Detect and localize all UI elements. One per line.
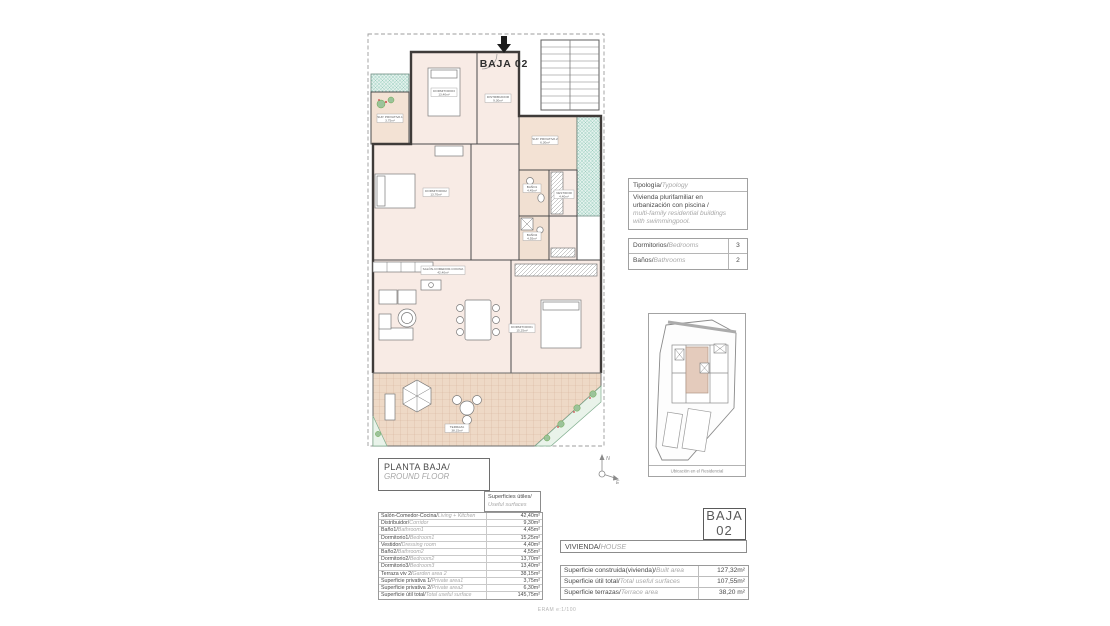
compass-east-label: E: [616, 480, 620, 484]
room-tag: TERRAZA38,15m²: [445, 424, 469, 433]
room-bano1: [519, 170, 549, 216]
room-tag: DORMITORIO115,25m²: [509, 324, 535, 333]
house-summary-table: Superficie construida(vivienda)/Built ar…: [560, 565, 749, 600]
title-block: PLANTA BAJA/ GROUND FLOOR: [378, 458, 490, 491]
table-row: Salón-Comedor-Cocina/Living + Kitchen42,…: [379, 513, 542, 520]
table-row: Dormitorio3/Bedroom313,40m²: [379, 563, 542, 570]
svg-text:42,40m²: 42,40m²: [437, 271, 448, 275]
unit-label: BAJA 02: [480, 58, 528, 70]
room-tag: BAÑO14,45m²: [523, 184, 541, 193]
green-mosaic-strip-left: [371, 74, 409, 92]
table-row: Baño2/Bathroom24,55m²: [379, 549, 542, 556]
bedrooms-count: 3: [728, 239, 747, 253]
floor-title-en: GROUND FLOOR: [384, 472, 489, 481]
svg-text:38,15m²: 38,15m²: [451, 429, 462, 433]
stairs-icon: [541, 40, 599, 110]
terrace-area-value: 38,20 m²: [698, 588, 748, 599]
svg-text:9,30m²: 9,30m²: [493, 99, 503, 103]
svg-text:6,30m²: 6,30m²: [540, 141, 550, 145]
svg-text:4,40m²: 4,40m²: [559, 195, 569, 199]
surfaces-table: Salón-Comedor-Cocina/Living + Kitchen42,…: [378, 512, 543, 600]
house-bar: VIVIENDA/HOUSE: [560, 540, 747, 553]
room-tag: BAÑO24,55m²: [523, 232, 541, 241]
typology-description: Vivienda plurifamiliar en urbanización c…: [629, 192, 747, 229]
floor-title: PLANTA BAJA/: [384, 462, 489, 472]
bed-icon: [541, 300, 581, 348]
table-row-total: Superficie útil total/Total useful surfa…: [379, 592, 542, 599]
room-tag: SUP. PRIVATIVA 13,75m²: [377, 114, 403, 123]
room-tag: VESTIDOR4,40m²: [554, 190, 574, 199]
svg-text:15,25m²: 15,25m²: [516, 329, 527, 333]
table-row: Dormitorio1/Bedroom115,25m²: [379, 535, 542, 542]
table-row: Terraza viv 2/Garden area 238,15m²: [379, 571, 542, 578]
map-caption: Ubicación en el Residencial: [671, 469, 724, 474]
plant-icon: [375, 431, 380, 436]
table-row: Superficie privativa 1/Private area13,75…: [379, 578, 542, 585]
table-row: Superficie terrazas/Terrace area38,20 m²: [561, 588, 748, 599]
table-row: Superficie construida(vivienda)/Built ar…: [561, 566, 748, 577]
typology-box: Tipología/Typology Vivienda plurifamilia…: [628, 178, 748, 230]
useful-surfaces-header: Superficies útiles/ Useful surfaces: [484, 491, 541, 512]
svg-text:3,75m²: 3,75m²: [385, 119, 395, 123]
entry-arrow-icon: [497, 36, 511, 53]
site-location-map: Ubicación en el Residencial: [648, 313, 746, 477]
wardrobe-icon: [515, 264, 597, 276]
scale-note: ERAM e:1/100: [477, 607, 637, 613]
compass-icon: N E: [592, 450, 622, 484]
table-row: Superficie útil total/Total useful surfa…: [561, 577, 748, 588]
table-row: Dormitorios/Bedrooms 3: [629, 239, 747, 254]
green-mosaic-strip-right: [577, 116, 601, 216]
compass-north-label: N: [606, 456, 610, 462]
dining-table-icon: [457, 300, 500, 340]
table-row: Superficie privativa 2/Private area26,30…: [379, 585, 542, 592]
table-row: Distribuidor/Corridor9,30m²: [379, 520, 542, 527]
svg-text:13,40m²: 13,40m²: [438, 93, 449, 97]
unit-number-box: BAJA 02: [703, 508, 746, 540]
typology-header: Tipología/Typology: [629, 179, 747, 192]
rug-icon: [402, 313, 413, 324]
bathrooms-count: 2: [728, 254, 747, 269]
table-row: Baño1/Bathroom14,45m²: [379, 527, 542, 534]
wardrobe-icon: [551, 248, 575, 257]
room-tag: DISTRIBUIDOR9,30m²: [485, 94, 511, 103]
floor-plan: BAJA 02 SUP. PRIVATIVA 13,75m² DORMITORI…: [365, 28, 610, 453]
built-area-value: 127,32m²: [698, 566, 748, 576]
room-corridor: [471, 144, 519, 260]
room-tag: SALÓN-COMEDOR-COCINA42,40m²: [421, 266, 465, 275]
building-footprint: [672, 344, 728, 403]
svg-text:13,70m²: 13,70m²: [430, 193, 441, 197]
table-row: Vestidor/Dressing room4,40m²: [379, 542, 542, 549]
table-row: Dormitorio2/Bedroom213,70m²: [379, 556, 542, 563]
table-row: Baños/Bathrooms 2: [629, 254, 747, 269]
room-tag: DORMITORIO313,40m²: [431, 88, 457, 97]
terrace: [373, 373, 601, 446]
room-tag: SUP. PRIVATIVA 26,30m²: [532, 136, 558, 145]
room-tag: DORMITORIO213,70m²: [423, 188, 449, 197]
desk-icon: [435, 146, 463, 156]
svg-text:4,55m²: 4,55m²: [527, 237, 537, 241]
svg-text:4,45m²: 4,45m²: [527, 189, 537, 193]
bed-icon: [375, 174, 415, 208]
rooms-count-table: Dormitorios/Bedrooms 3 Baños/Bathrooms 2: [628, 238, 748, 270]
useful-area-value: 107,55m²: [698, 577, 748, 587]
